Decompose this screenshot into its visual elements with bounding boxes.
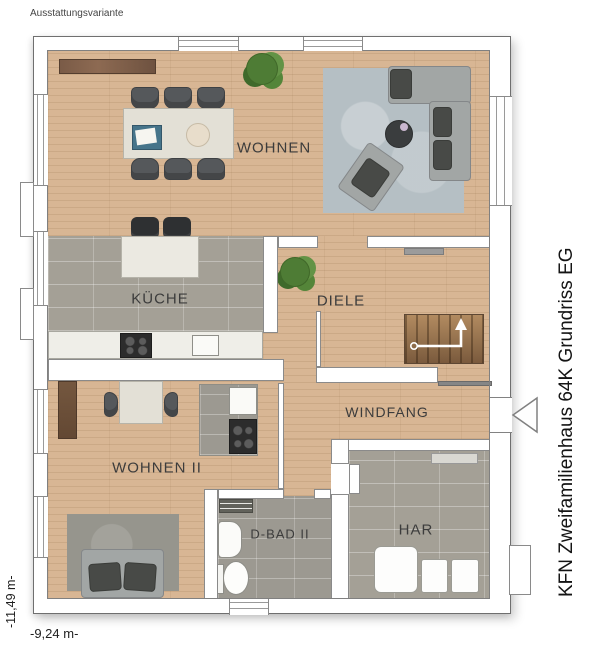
kitchenette-cooktop-icon (229, 419, 257, 454)
window (34, 496, 48, 558)
sideboard (59, 59, 156, 74)
window-sill (20, 182, 34, 237)
sofa-cushion (433, 107, 452, 137)
dining-chair (131, 158, 159, 180)
toilet-icon (223, 561, 249, 595)
wall (316, 367, 438, 383)
window (34, 231, 48, 306)
dimension-width: -9,24 m- (30, 626, 78, 641)
appliance (421, 559, 448, 593)
shower (219, 499, 253, 513)
wall (367, 236, 490, 248)
wall (314, 489, 331, 499)
coffee-table-decor (400, 123, 408, 131)
table (119, 381, 163, 424)
kitchen-counter (48, 331, 263, 359)
window (229, 599, 269, 615)
wall (263, 236, 278, 333)
chair (104, 392, 118, 417)
window-sill (20, 288, 34, 340)
room-label-kueche: KÜCHE (131, 291, 189, 308)
room-label-wohnen: WOHNEN (237, 140, 311, 157)
appliance (374, 546, 418, 593)
paper (135, 128, 157, 146)
sofa-cushion (123, 562, 157, 592)
cooktop-icon (120, 333, 152, 358)
stairs-direction-arrow (405, 315, 485, 365)
wall (48, 359, 284, 381)
room-label-d-bad-ii: D-BAD II (250, 527, 309, 542)
wall (331, 494, 349, 599)
coffee-table (385, 120, 413, 148)
wall (278, 236, 318, 248)
dining-chair (197, 87, 225, 109)
doormat (404, 248, 444, 255)
kitchen-island (121, 236, 199, 278)
window (178, 37, 239, 51)
dining-chair (131, 87, 159, 109)
sofa-cushion (433, 140, 452, 170)
wall (278, 383, 284, 489)
appliance (451, 559, 479, 593)
dining-chair (164, 87, 192, 109)
room-label-har: HAR (399, 522, 434, 539)
shelf (431, 453, 478, 464)
dining-chair (197, 158, 225, 180)
chair (164, 392, 178, 417)
place-setting (186, 123, 210, 147)
door-leaf (349, 464, 360, 494)
floorplan: WOHNEN KÜCHE DIELE WINDFANG WOHNEN II D-… (33, 36, 511, 614)
plan-title: KFN Zweifamilienhaus 64K Grundriss EG (556, 190, 578, 655)
room-label-wohnen-ii: WOHNEN II (112, 460, 202, 477)
floorplan-page: Ausstattungsvariante (0, 0, 600, 661)
wardrobe (58, 381, 77, 439)
window (490, 96, 512, 206)
plant-icon (246, 53, 278, 85)
wall (316, 311, 321, 367)
window (34, 94, 48, 186)
window (34, 389, 48, 454)
sofa-cushion (88, 562, 122, 592)
bathroom-sink-icon (218, 521, 242, 558)
variant-label: Ausstattungsvariante (30, 8, 123, 19)
plant-icon (280, 257, 310, 287)
room-label-diele: DIELE (317, 293, 365, 310)
sofa-cushion (390, 69, 412, 99)
window (303, 37, 363, 51)
chimney (509, 545, 531, 595)
entrance-opening (490, 397, 512, 433)
room-label-windfang: WINDFANG (345, 404, 428, 420)
floor-corridor (284, 439, 331, 496)
kitchenette-sink-icon (229, 387, 257, 415)
entrance-door-icon (511, 396, 539, 434)
wall (331, 439, 490, 451)
wall (204, 489, 218, 599)
sink-icon (192, 335, 219, 356)
wall (218, 489, 284, 499)
stairs (404, 314, 484, 364)
dining-chair (164, 158, 192, 180)
entry-door-track (438, 381, 492, 386)
wall (331, 439, 349, 464)
dimension-height: -11,49 m- (4, 538, 18, 628)
